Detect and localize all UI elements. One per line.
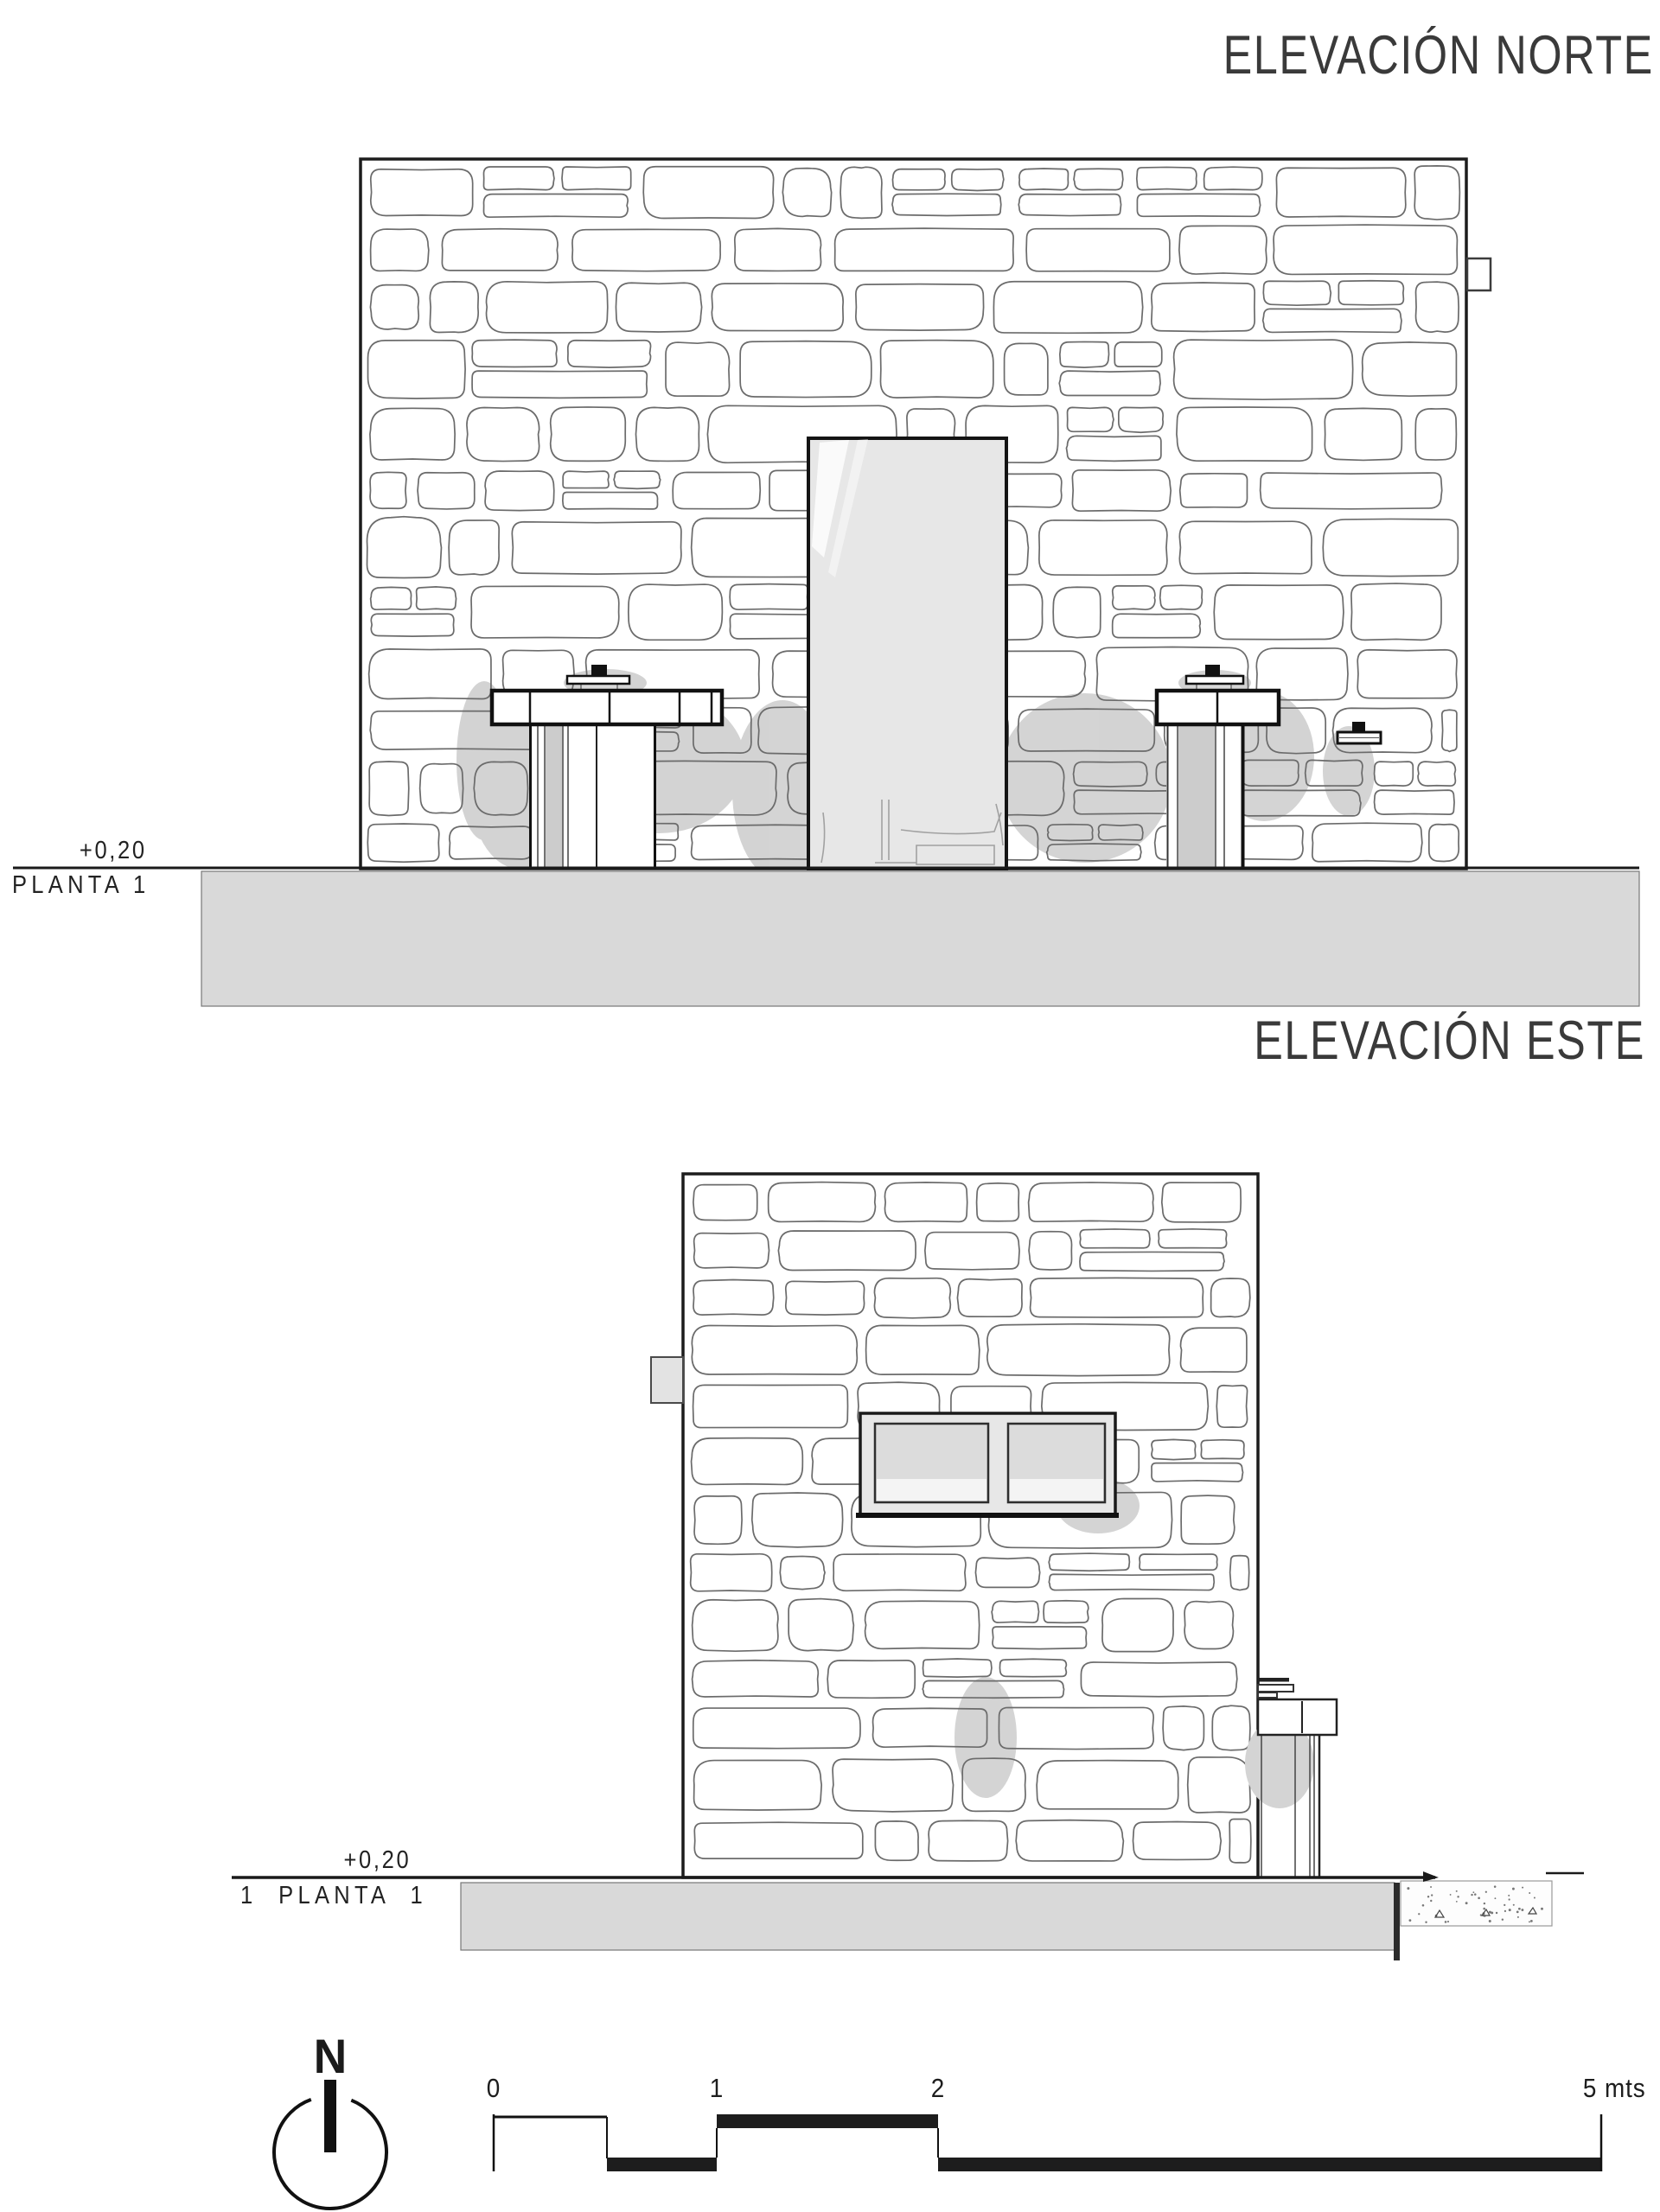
gravel-strip xyxy=(1401,1881,1552,1926)
north-floor-label: PLANTA 1 xyxy=(12,871,150,900)
drawing-sheet: ELEVACIÓN NORTE ELEVACIÓN ESTE +0,20 PLA… xyxy=(0,0,1660,2212)
scale-tick-2: 2 xyxy=(924,2073,952,2104)
washbasin-counter xyxy=(492,691,722,724)
east-floor-label: 1 PLANTA 1 xyxy=(240,1882,427,1910)
east-foundation-slab xyxy=(461,1883,1395,1950)
faucet-handle-icon xyxy=(591,665,607,676)
slab-edge xyxy=(1394,1883,1400,1960)
north-level-label: +0,20 xyxy=(67,837,159,865)
scale-tick-1: 1 xyxy=(703,2073,731,2104)
scale-tick-0: 0 xyxy=(480,2073,508,2104)
north-elevation-drawing xyxy=(13,159,1639,1006)
north-arrow-letter: N xyxy=(306,2028,355,2084)
north-wall-scupper xyxy=(1467,258,1491,290)
north-arrow-icon xyxy=(274,2080,386,2209)
scale-bar xyxy=(494,2114,1601,2171)
east-elevation-title: ELEVACIÓN ESTE xyxy=(1254,1010,1645,1072)
elevation-drawing xyxy=(0,0,1660,2212)
scale-end-label: 5 mts xyxy=(1546,2073,1645,2104)
door-opening xyxy=(808,438,1006,869)
faucet-plate xyxy=(1186,676,1243,684)
faucet-plate xyxy=(567,676,629,684)
window xyxy=(856,1413,1119,1515)
ground-line-arrow xyxy=(1423,1871,1439,1882)
east-wall-scupper xyxy=(651,1357,683,1403)
east-level-label: +0,20 xyxy=(335,1846,419,1875)
side-faucet xyxy=(1258,1678,1293,1698)
washbasin-counter xyxy=(1258,1699,1337,1735)
faucet-handle-icon xyxy=(1205,665,1220,676)
north-elevation-title: ELEVACIÓN NORTE xyxy=(1223,24,1654,86)
east-elevation-drawing xyxy=(232,1174,1584,1960)
north-foundation-slab xyxy=(201,871,1639,1006)
